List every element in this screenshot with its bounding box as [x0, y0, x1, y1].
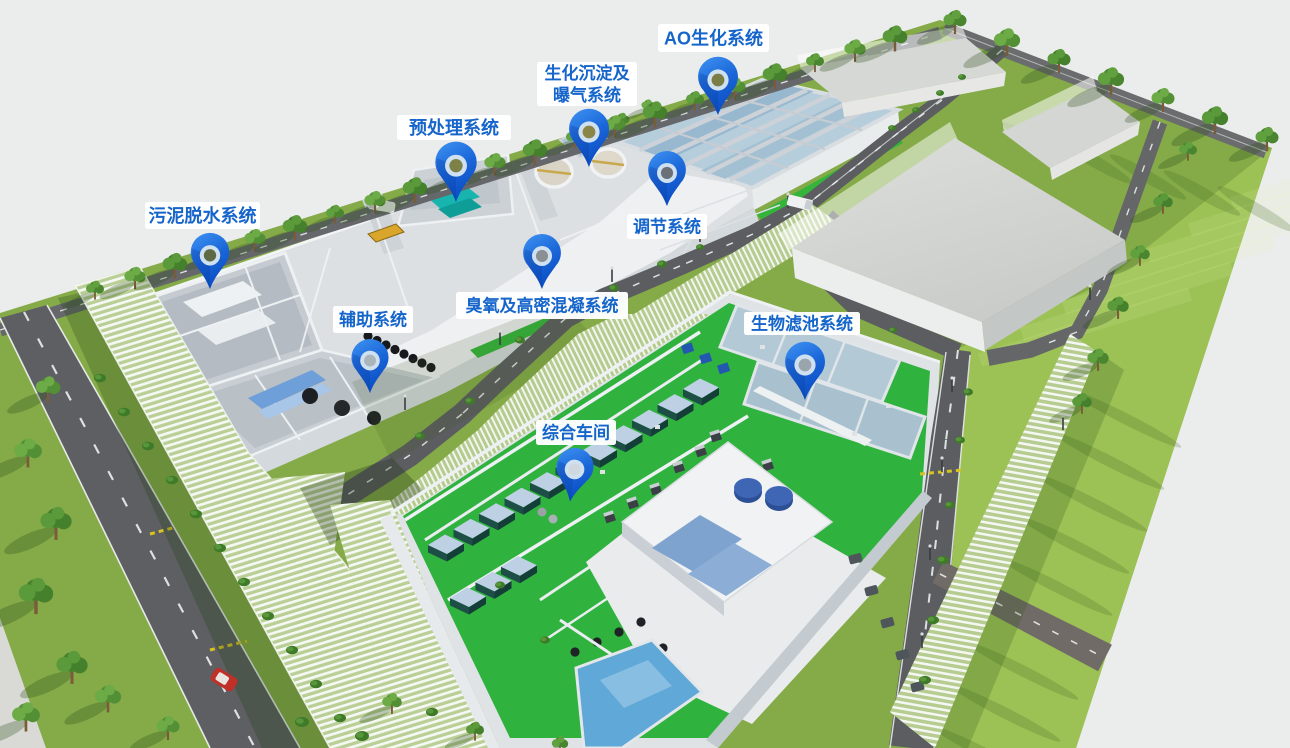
svg-text:污泥脱水系统: 污泥脱水系统	[149, 205, 257, 226]
svg-text:臭氧及高密混凝系统: 臭氧及高密混凝系统	[466, 296, 619, 316]
svg-text:生物滤池系统: 生物滤池系统	[751, 314, 853, 334]
svg-text:预处理系统: 预处理系统	[409, 117, 499, 138]
svg-text:AO生化系统: AO生化系统	[664, 28, 763, 49]
svg-text:调节系统: 调节系统	[633, 217, 701, 237]
svg-text:曝气系统: 曝气系统	[553, 85, 621, 105]
svg-text:综合车间: 综合车间	[542, 423, 610, 443]
svg-text:辅助系统: 辅助系统	[339, 310, 407, 330]
svg-text:生化沉淀及: 生化沉淀及	[545, 63, 631, 83]
